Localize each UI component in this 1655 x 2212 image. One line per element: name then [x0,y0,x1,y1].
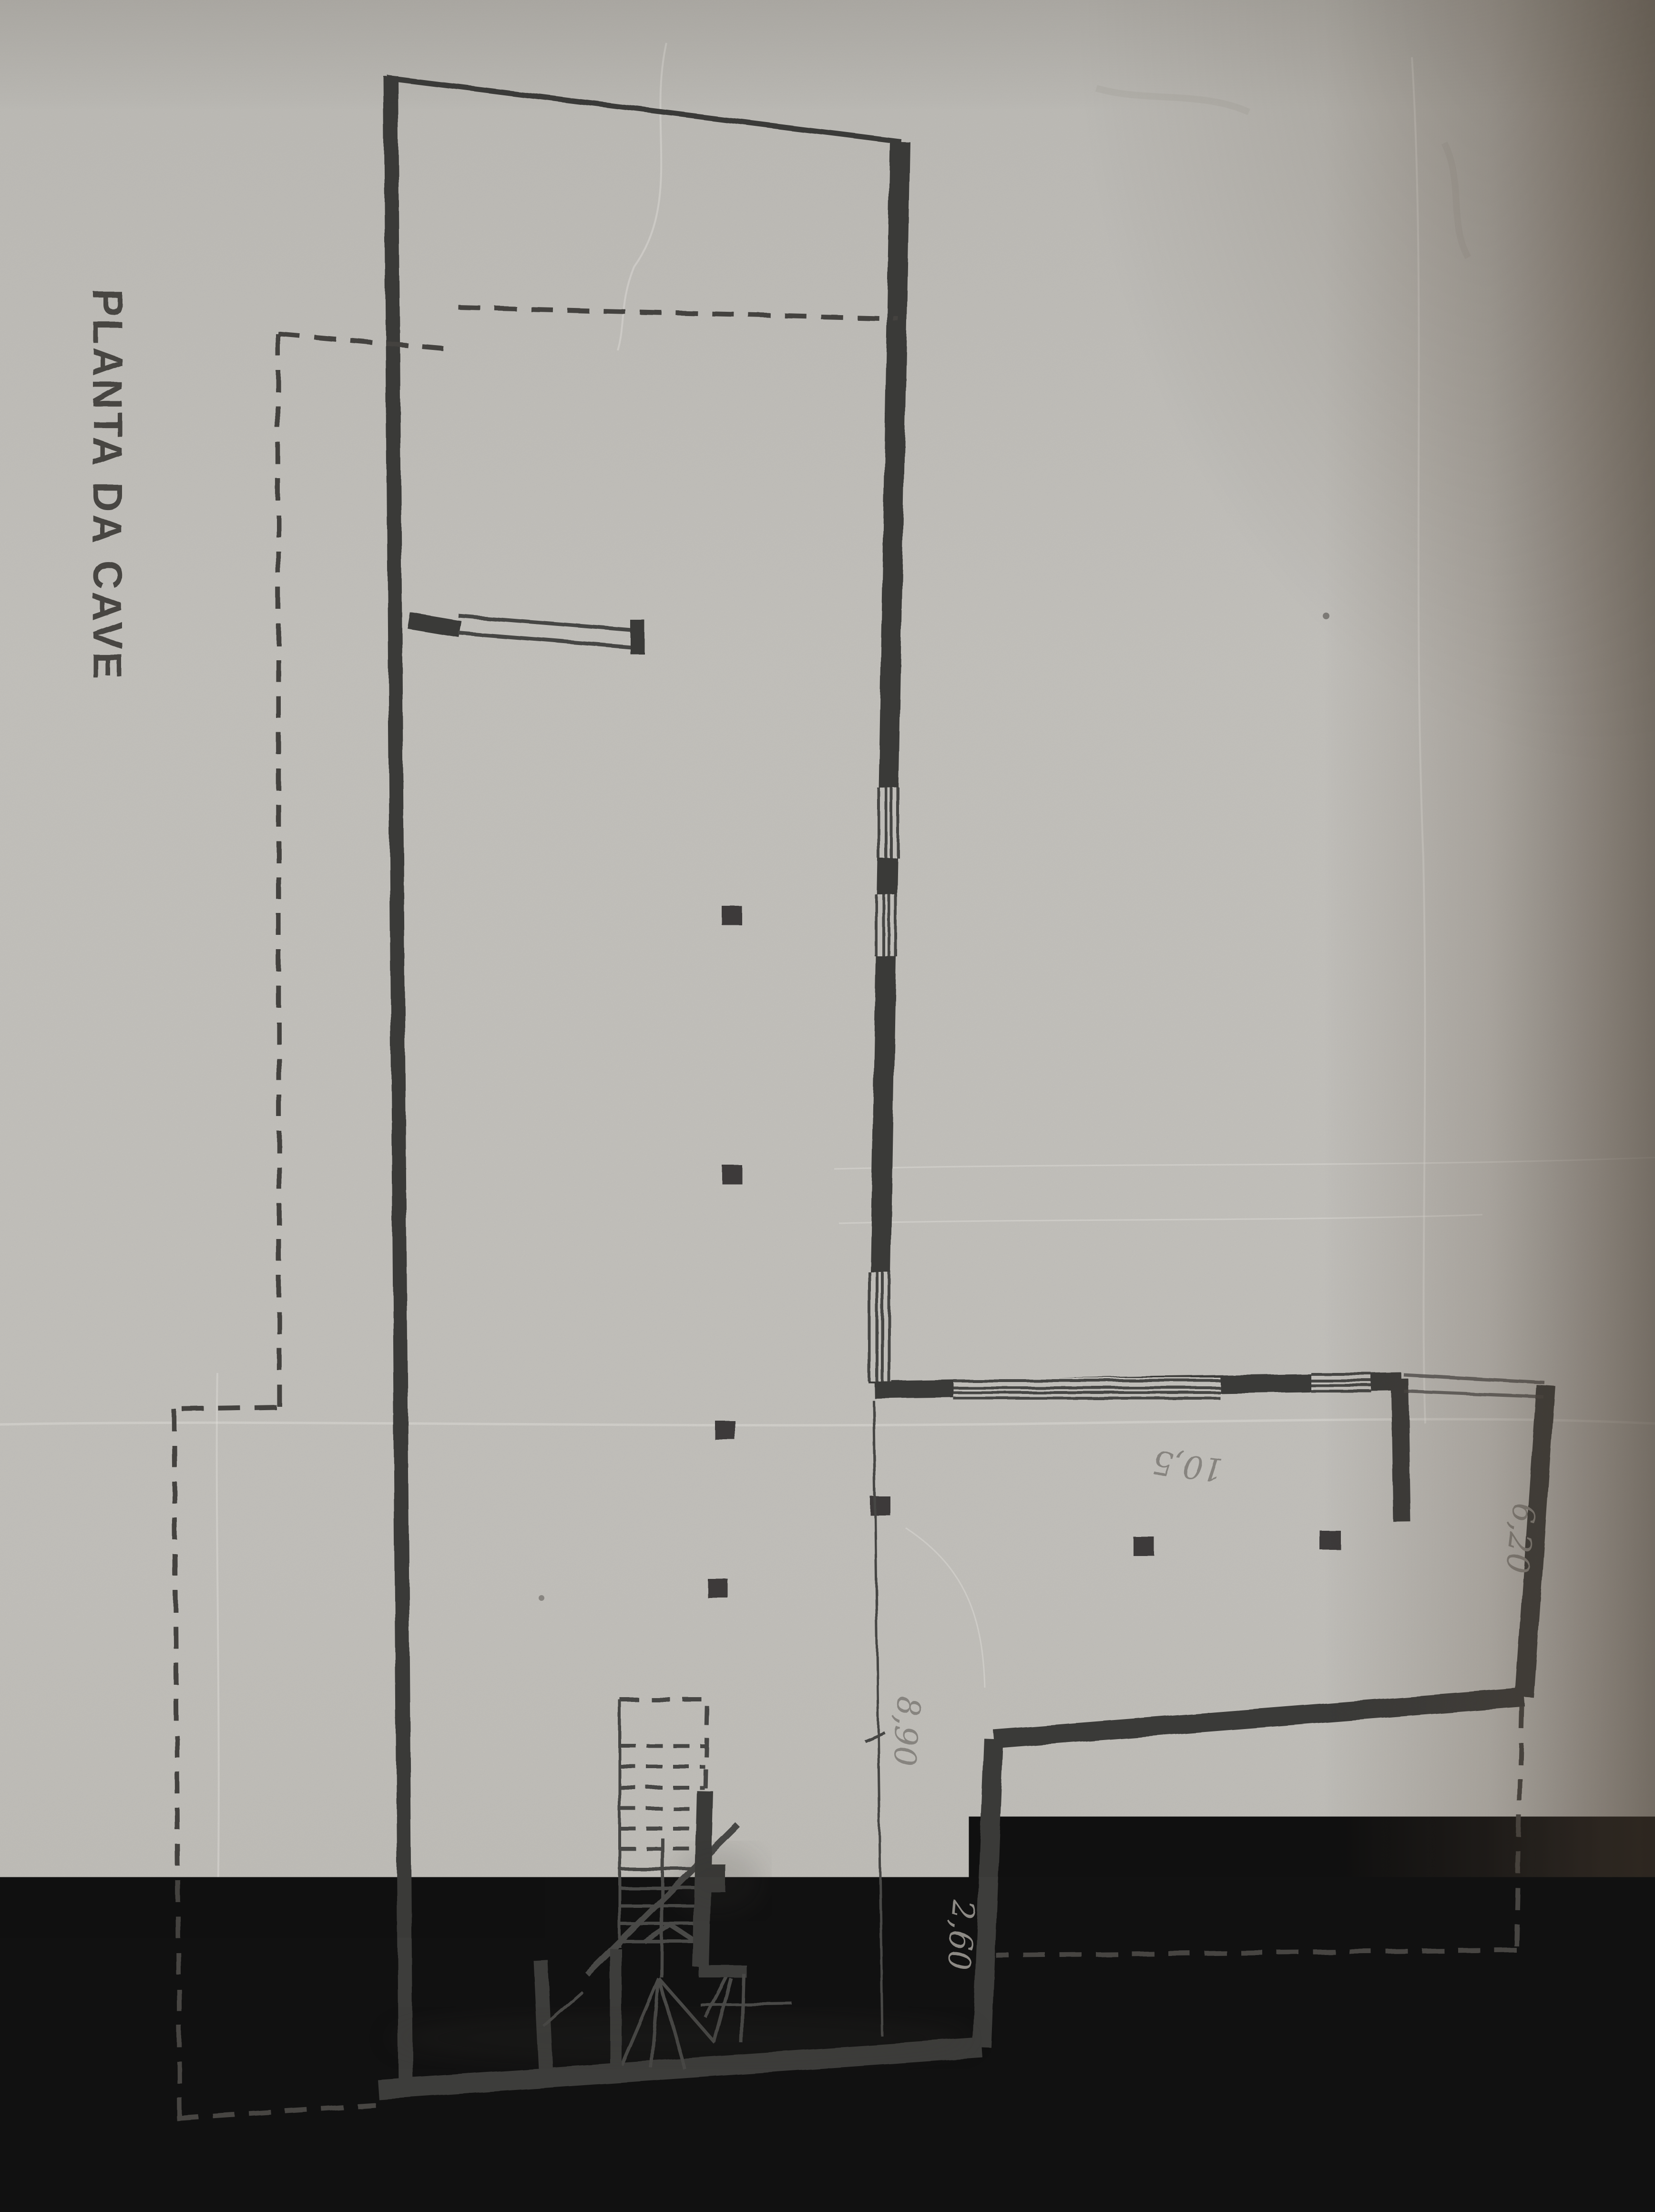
floorplan-drawing: PLANTA DA CAVE 8,90 10,5 6,20 2,60 [0,0,1655,2212]
photographed-floorplan-sheet: PLANTA DA CAVE 8,90 10,5 6,20 2,60 [0,0,1655,2212]
paper-grain [0,0,1655,2212]
photo-shading [0,0,1655,2212]
